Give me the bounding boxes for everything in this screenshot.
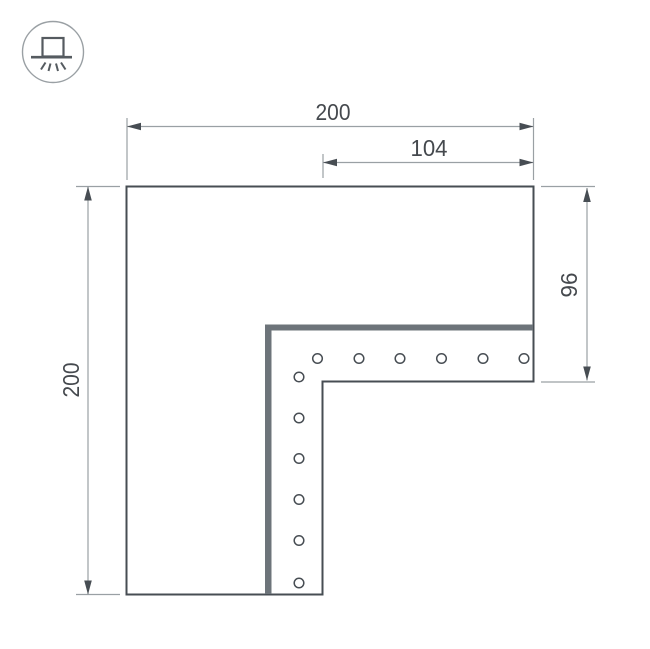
mounting-holes [294,354,529,588]
arrowhead-up [583,188,591,202]
icon-light-rays [41,63,66,72]
arrowhead-down [84,581,92,595]
dim-label-left-height: 200 [58,363,84,398]
arrowhead-right [520,123,534,131]
mounting-hole [313,354,323,364]
dim-label-top-inner-width: 104 [411,135,448,161]
arrowhead-left [127,123,141,131]
arrowhead-left [323,159,337,167]
technical-drawing: 200 104 200 96 [0,0,650,649]
mounting-hole [294,536,304,546]
dim-top-width: 200 [127,99,534,180]
surface-mounted-light-icon [23,22,84,83]
dim-label-right-inner-height: 96 [556,273,582,298]
mounting-hole [294,454,304,464]
mounting-hole [478,354,488,364]
mounting-hole [519,354,529,364]
mounting-hole [294,495,304,505]
dim-label-top-width: 200 [316,99,351,125]
icon-circle [23,22,84,83]
dim-right-inner-height: 96 [541,187,595,383]
mounting-hole [437,354,447,364]
dim-left-height: 200 [58,187,120,595]
dim-top-inner-width: 104 [323,135,534,178]
mounting-hole [294,372,304,382]
arrowhead-right [520,159,534,167]
mounting-hole [294,578,304,588]
mounting-hole [354,354,364,364]
arrowhead-down [583,367,591,381]
drawing-canvas: 200 104 200 96 [0,0,650,649]
corner-profile-outline [127,187,534,595]
icon-fixture-box [43,38,64,57]
mounting-hole [395,354,405,364]
mounting-hole [294,413,304,423]
arrowhead-up [84,187,92,201]
